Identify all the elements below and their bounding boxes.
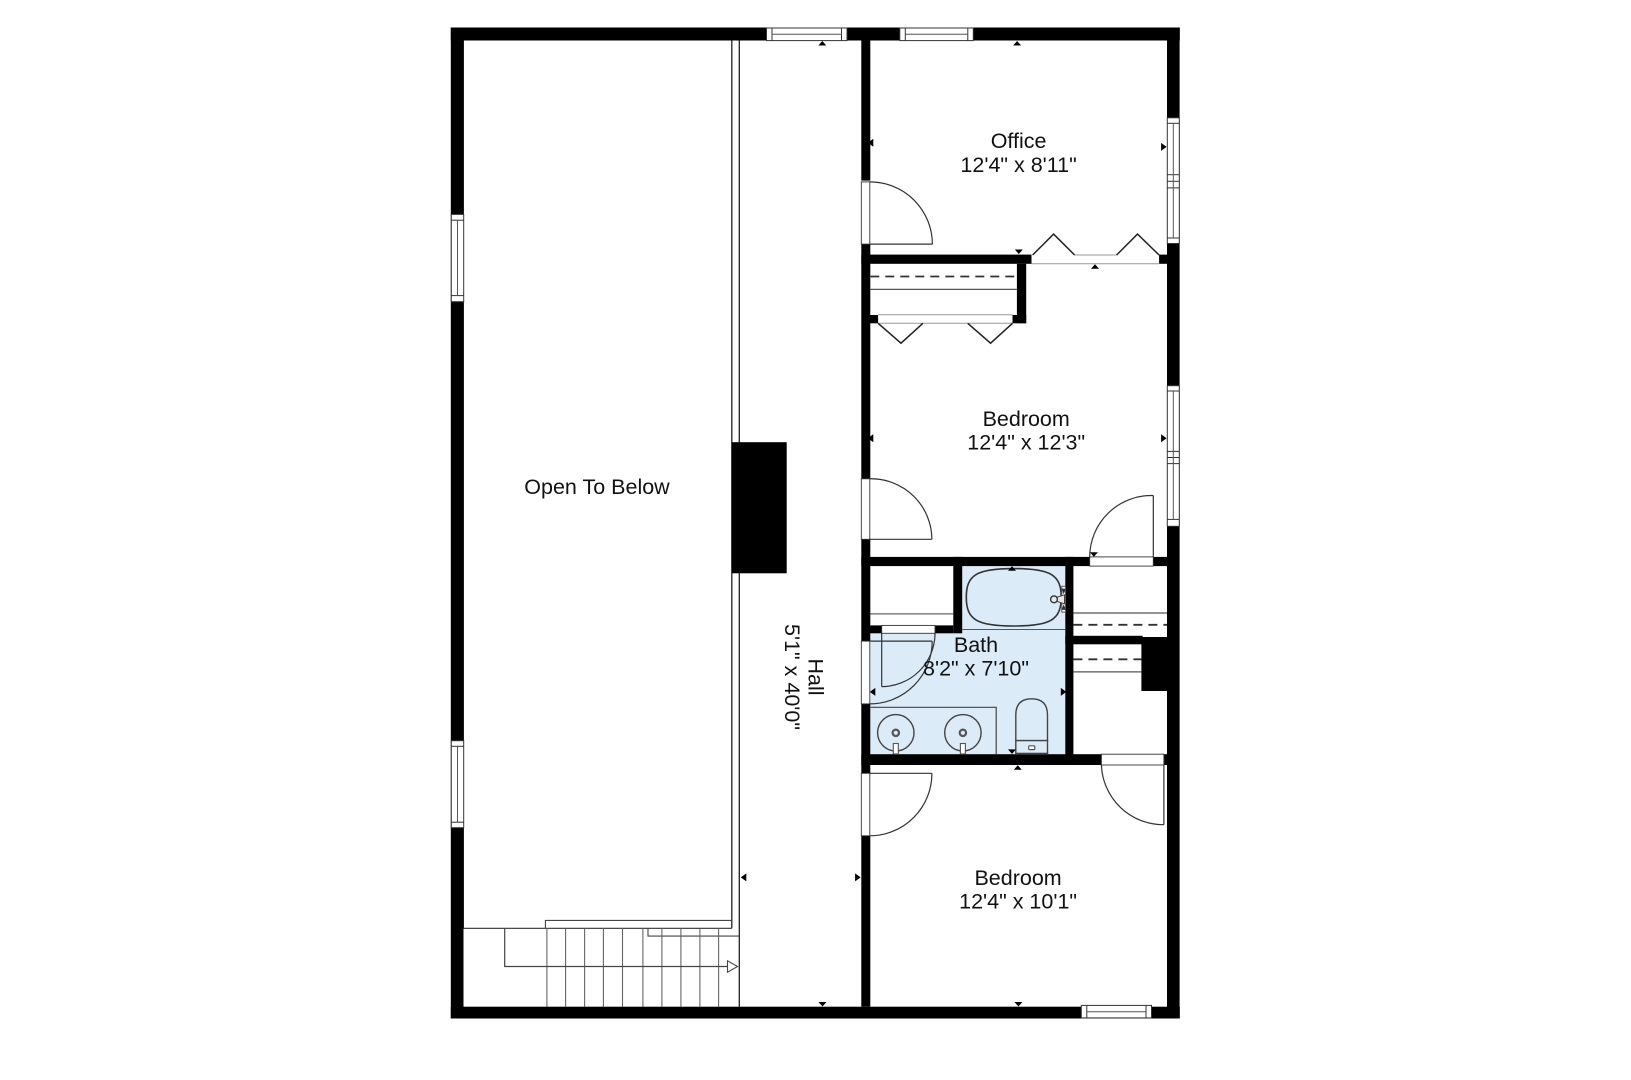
- svg-text:12'4" x 8'11": 12'4" x 8'11": [960, 153, 1076, 177]
- svg-text:Bedroom: Bedroom: [974, 866, 1061, 890]
- svg-text:Open To Below: Open To Below: [524, 475, 670, 499]
- svg-text:12'4" x 10'1": 12'4" x 10'1": [959, 890, 1077, 914]
- svg-text:Bedroom: Bedroom: [983, 407, 1070, 431]
- svg-text:Office: Office: [991, 129, 1047, 153]
- svg-text:5'1" x 40'0": 5'1" x 40'0": [780, 624, 804, 730]
- svg-text:Bath: Bath: [954, 633, 998, 657]
- svg-text:Hall: Hall: [803, 658, 827, 695]
- svg-text:12'4" x 12'3": 12'4" x 12'3": [967, 431, 1085, 455]
- svg-text:8'2" x 7'10": 8'2" x 7'10": [923, 657, 1029, 681]
